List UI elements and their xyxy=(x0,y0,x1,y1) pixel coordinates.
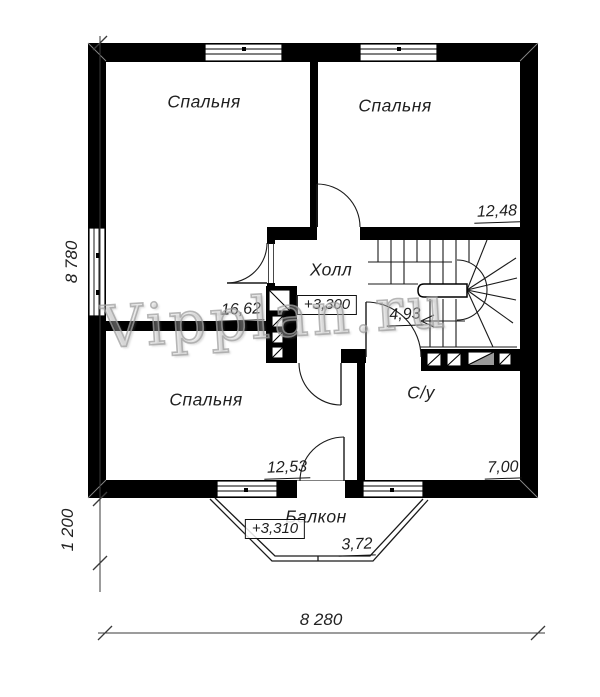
dimension-label-width-total: 8 280 xyxy=(300,610,343,630)
dimension-label-balcony-depth: 1 200 xyxy=(58,509,78,552)
area-label-balcony: 3,72 xyxy=(338,535,376,556)
wall-bedroom1-bottom xyxy=(106,321,267,331)
window-bottom-right xyxy=(363,481,423,497)
room-label-bedroom-bottom: Спальня xyxy=(169,390,242,411)
room-label-bedroom-top-right: Спальня xyxy=(358,96,431,117)
floor-plan: Vipplan.ru Спальня Спальня Холл Спальня … xyxy=(0,0,600,697)
area-label-bedroom-top-right: 12,48 xyxy=(474,202,521,224)
room-label-hall: Холл xyxy=(310,260,352,281)
wall-hall-top-left xyxy=(267,227,317,240)
area-label-hall: 4,93 xyxy=(386,305,424,326)
door-bedroom-top-left xyxy=(227,243,274,283)
wall-bedroom-bath-divider xyxy=(357,349,365,480)
area-label-bathroom: 7,00 xyxy=(484,458,522,479)
area-label-bedroom-bottom: 12,53 xyxy=(264,458,311,480)
dimension-lines xyxy=(93,36,545,640)
door-bedroom-top-right xyxy=(317,184,360,227)
wall-hall-top-right xyxy=(360,227,520,240)
area-label-bedroom-top-left: 16,62 xyxy=(218,300,265,322)
staircase xyxy=(368,240,517,347)
window-top-right xyxy=(360,44,437,61)
door-bedroom-bottom xyxy=(299,363,341,405)
elevation-badge-hall: +3,300 xyxy=(297,295,357,315)
window-left xyxy=(89,228,105,316)
dimension-label-height-total: 8 780 xyxy=(62,241,82,284)
wall-niche xyxy=(107,367,121,372)
floor-plan-linework xyxy=(0,0,600,697)
window-top-left xyxy=(205,44,282,61)
room-label-bedroom-top-left: Спальня xyxy=(167,92,240,113)
room-label-bathroom: С/у xyxy=(407,383,435,404)
window-bottom-left xyxy=(217,481,277,497)
stair-railing xyxy=(418,284,467,297)
balcony-door-opening xyxy=(297,481,345,499)
elevation-badge-balcony: +3,310 xyxy=(245,519,305,539)
